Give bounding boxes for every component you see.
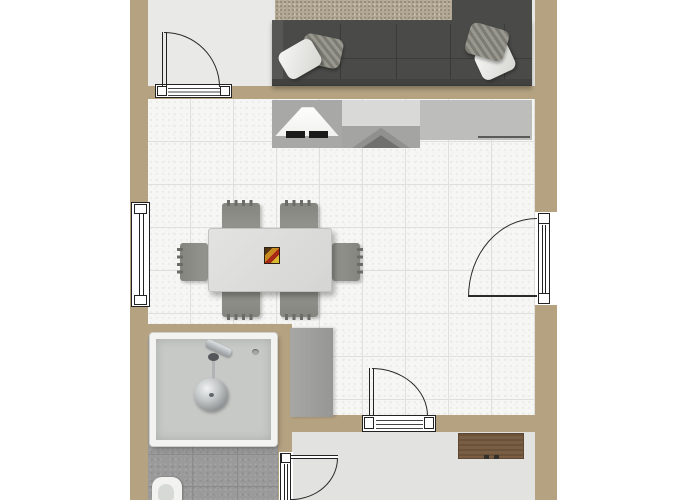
dining-chair-top-right	[280, 203, 318, 231]
media-unit-handle-line	[478, 136, 530, 138]
table-centerpiece	[264, 247, 280, 264]
chair-fringe	[227, 314, 255, 320]
chair-fringe	[285, 200, 313, 206]
window-jamb-block	[134, 204, 147, 214]
door-jamb-block	[364, 417, 374, 429]
tv-stand-bar	[286, 131, 305, 138]
door-panel-lines	[542, 225, 546, 293]
sofa-cushion-divider	[396, 24, 397, 79]
chair-fringe	[357, 248, 363, 276]
dining-chair-top-left	[222, 203, 260, 231]
bench-knob	[484, 455, 489, 459]
door-jamb-block	[281, 453, 291, 463]
door-threshold-lines	[376, 420, 423, 429]
door-jamb-block	[157, 86, 167, 96]
door-jamb-block	[220, 86, 230, 96]
drain-center	[209, 393, 214, 397]
toilet-bowl	[158, 484, 174, 500]
sofa-front-edge	[272, 79, 532, 86]
overflow-hole-icon	[252, 349, 259, 355]
window-glass-line	[139, 214, 144, 295]
cabinet	[290, 328, 333, 417]
door-jamb-block	[424, 417, 434, 429]
tv-stand-bar	[309, 131, 328, 138]
faucet-base	[208, 353, 219, 361]
dining-chair-right	[332, 243, 360, 281]
door-jamb-block	[538, 293, 550, 304]
chair-fringe	[177, 248, 183, 276]
chair-fringe	[227, 200, 255, 206]
door-jamb-block	[538, 213, 550, 224]
chair-fringe	[285, 314, 313, 320]
media-unit-middle	[342, 100, 420, 126]
sideboard-bench	[458, 433, 524, 459]
dining-chair-bottom-right	[280, 289, 318, 317]
media-unit-right	[420, 100, 532, 140]
dining-chair-left	[180, 243, 208, 281]
bench-knob	[494, 455, 499, 459]
door-threshold-lines	[168, 88, 220, 96]
dining-chair-bottom-left	[222, 289, 260, 317]
sofa-cushion-divider	[450, 24, 451, 79]
window-jamb-block	[134, 295, 147, 305]
floor-plan-canvas	[0, 0, 700, 500]
door-panel-lines	[284, 464, 288, 500]
